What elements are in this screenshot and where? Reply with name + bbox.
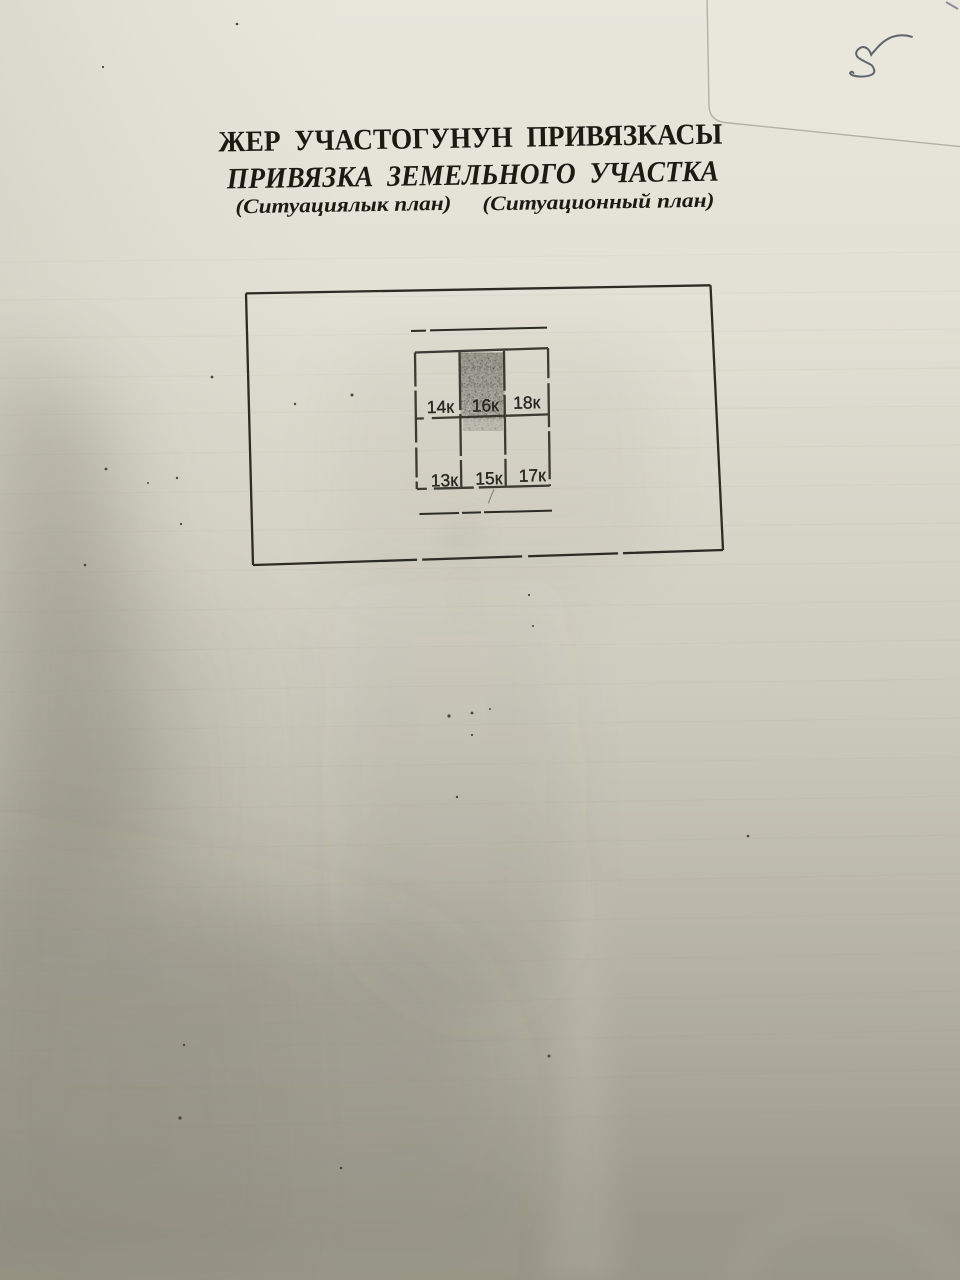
- svg-text:16к: 16к: [472, 395, 500, 416]
- svg-text:15к: 15к: [475, 468, 503, 489]
- svg-text:13к: 13к: [431, 470, 459, 491]
- svg-text:17к: 17к: [518, 465, 546, 486]
- svg-text:(Ситуациялык план): (Ситуациялык план): [235, 193, 451, 218]
- svg-text:14к: 14к: [427, 397, 455, 418]
- svg-text:(Ситуационный план): (Ситуационный план): [482, 190, 714, 216]
